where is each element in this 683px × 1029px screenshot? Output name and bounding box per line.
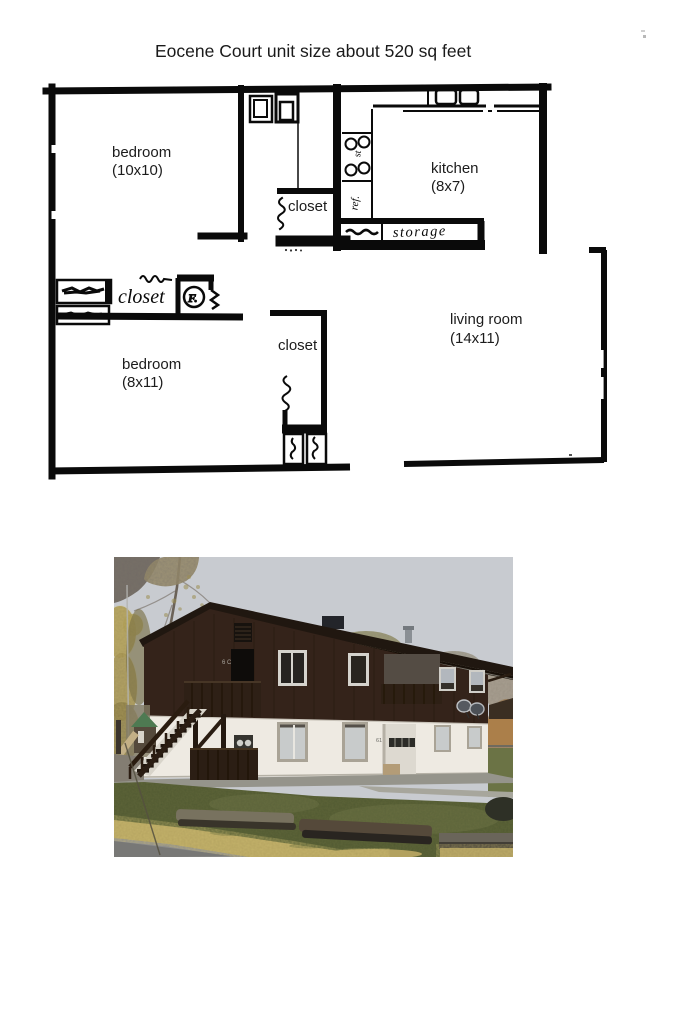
svg-text:(10x10): (10x10) xyxy=(112,162,163,179)
svg-text:closet: closet xyxy=(288,198,328,215)
svg-text:61: 61 xyxy=(376,738,382,744)
svg-text:kitchen: kitchen xyxy=(431,160,479,177)
svg-text:st: st xyxy=(352,149,364,158)
svg-text:living room: living room xyxy=(450,311,523,328)
svg-text:bedroom: bedroom xyxy=(112,144,171,161)
svg-text:F.: F. xyxy=(187,291,197,305)
svg-text:(14x11): (14x11) xyxy=(450,330,500,347)
svg-text:(8x7): (8x7) xyxy=(431,178,465,195)
svg-text:ref.: ref. xyxy=(349,195,362,211)
svg-text:6 C: 6 C xyxy=(222,660,232,666)
svg-text:storage: storage xyxy=(393,223,448,241)
svg-text:closet: closet xyxy=(278,337,318,354)
svg-text:closet: closet xyxy=(118,286,165,308)
svg-text:bedroom: bedroom xyxy=(122,356,181,373)
svg-text:(8x11): (8x11) xyxy=(122,374,163,391)
